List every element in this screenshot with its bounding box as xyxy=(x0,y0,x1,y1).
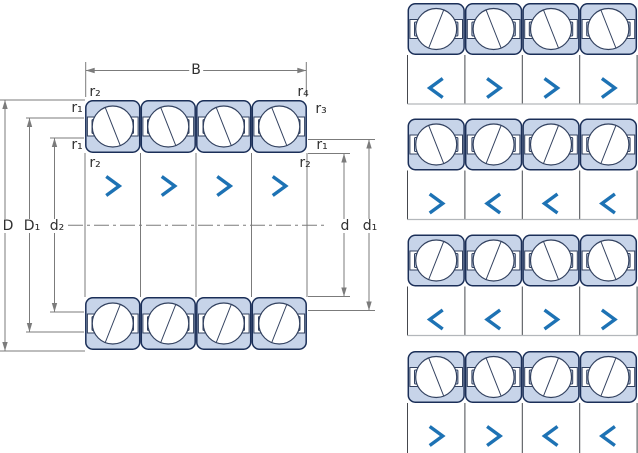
dimension-arrow xyxy=(52,138,57,147)
bearing-cross-section xyxy=(523,235,579,285)
chevron-left-icon xyxy=(602,194,615,213)
chevron-right-icon xyxy=(487,427,500,446)
bearing-cross-section xyxy=(197,298,251,349)
label-d2: d₂ xyxy=(48,219,67,233)
chevron-left-icon xyxy=(545,194,558,213)
bearing-cross-section xyxy=(466,235,522,285)
chevron-left-icon xyxy=(602,427,615,446)
chevron-left-icon xyxy=(487,310,500,329)
chevron-left-icon xyxy=(487,194,500,213)
arrangement-row xyxy=(408,235,638,335)
bearing-cross-section xyxy=(86,298,140,349)
chevron-right-icon xyxy=(430,194,443,213)
label-r2-bottom-left: r₂ xyxy=(89,156,100,170)
label-D: D xyxy=(1,219,16,233)
label-B: B xyxy=(189,63,203,77)
arrangement-panel xyxy=(408,4,638,453)
bearing-cross-section xyxy=(252,101,306,152)
bearing-cross-section xyxy=(141,298,195,349)
label-r2-top-left: r₂ xyxy=(89,85,100,99)
dimension-arrow xyxy=(366,140,371,149)
chevron-right-icon xyxy=(430,427,443,446)
dimension-arrow xyxy=(2,100,7,109)
bearing-cross-section xyxy=(581,4,637,54)
chevron-left-icon xyxy=(545,427,558,446)
label-r1-left-upper: r₁ xyxy=(71,101,82,115)
main-sectional-view xyxy=(68,101,324,349)
bearing-cross-section xyxy=(141,101,195,152)
dimension-arrow xyxy=(27,118,32,127)
chevron-right-icon xyxy=(487,79,500,98)
chevron-right-icon xyxy=(106,177,119,196)
bearing-technical-drawing: B D D₁ d₂ d d₁ r₂ r₁ r₁ r₂ r₄ r₃ r₁ r₂ xyxy=(0,0,638,453)
label-r1-right: r₁ xyxy=(316,138,327,152)
chevron-right-icon xyxy=(217,177,230,196)
arrangement-row xyxy=(408,4,638,104)
arrangement-row xyxy=(408,119,638,219)
label-d1: d₁ xyxy=(361,219,380,233)
dimension-arrow xyxy=(86,68,95,73)
label-r3-right: r₃ xyxy=(315,102,326,116)
bearing-cross-section xyxy=(408,4,464,54)
chevron-left-icon xyxy=(430,79,443,98)
bearing-cross-section xyxy=(523,119,579,169)
bearing-cross-section xyxy=(252,298,306,349)
chevron-right-icon xyxy=(602,79,615,98)
chevron-right-icon xyxy=(162,177,175,196)
dimension-arrow xyxy=(341,154,346,163)
bearing-cross-section xyxy=(581,235,637,285)
bearing-cross-section xyxy=(408,235,464,285)
chevron-left-icon xyxy=(430,310,443,329)
dimension-arrow xyxy=(341,288,346,297)
dimension-arrow xyxy=(366,302,371,311)
diagram-canvas xyxy=(0,0,638,453)
chevron-right-icon xyxy=(545,310,558,329)
bearing-cross-section xyxy=(197,101,251,152)
arrangement-row xyxy=(408,352,638,453)
label-r2-bottom-right: r₂ xyxy=(299,156,310,170)
dimension-arrow xyxy=(2,342,7,351)
bearing-cross-section xyxy=(581,119,637,169)
dimension-arrow xyxy=(27,323,32,332)
chevron-right-icon xyxy=(545,79,558,98)
bearing-cross-section xyxy=(523,352,579,402)
dimension-arrow xyxy=(297,68,306,73)
label-D1: D₁ xyxy=(22,219,42,233)
bearing-cross-section xyxy=(466,352,522,402)
label-r1-left-lower: r₁ xyxy=(71,138,82,152)
bearing-cross-section xyxy=(466,119,522,169)
dimension-arrow xyxy=(52,303,57,312)
bearing-cross-section xyxy=(581,352,637,402)
bearing-cross-section xyxy=(408,119,464,169)
bearing-cross-section xyxy=(466,4,522,54)
bearing-cross-section xyxy=(86,101,140,152)
chevron-right-icon xyxy=(602,310,615,329)
bearing-cross-section xyxy=(408,352,464,402)
bearing-cross-section xyxy=(523,4,579,54)
label-d: d xyxy=(339,219,352,233)
chevron-right-icon xyxy=(273,177,286,196)
label-r4-top-right: r₄ xyxy=(297,85,308,99)
